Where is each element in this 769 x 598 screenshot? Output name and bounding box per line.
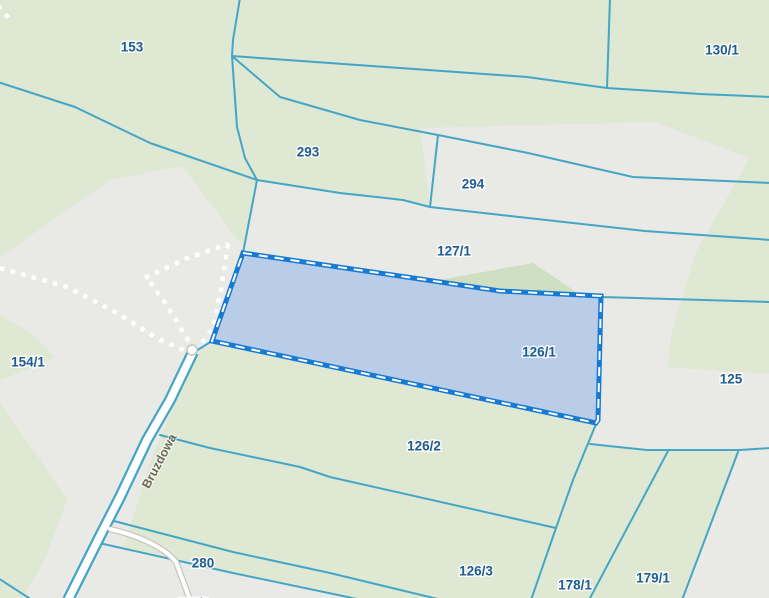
- parcel-label-125: 125: [720, 372, 743, 387]
- parcel-label-126-2: 126/2: [407, 439, 441, 454]
- parcel-label-294: 294: [462, 177, 485, 192]
- cadastral-map[interactable]: 153130/1293294127/1126/1154/1125126/2280…: [0, 0, 769, 598]
- parcel-label-178-1: 178/1: [558, 578, 592, 593]
- parcel-label-154-1: 154/1: [11, 355, 45, 370]
- road-end-cap: [187, 345, 197, 355]
- parcel-label-126-3: 126/3: [459, 564, 493, 579]
- parcel-label-293: 293: [297, 145, 320, 160]
- parcel-label-153: 153: [121, 40, 144, 55]
- map-viewport[interactable]: 153130/1293294127/1126/1154/1125126/2280…: [0, 0, 769, 598]
- parcel-label-126-1: 126/1: [522, 345, 556, 360]
- parcel-label-280: 280: [192, 556, 215, 571]
- parcel-label-127-1: 127/1: [437, 244, 471, 259]
- parcel-label-130-1: 130/1: [705, 43, 739, 58]
- parcel-label-179-1: 179/1: [636, 571, 670, 586]
